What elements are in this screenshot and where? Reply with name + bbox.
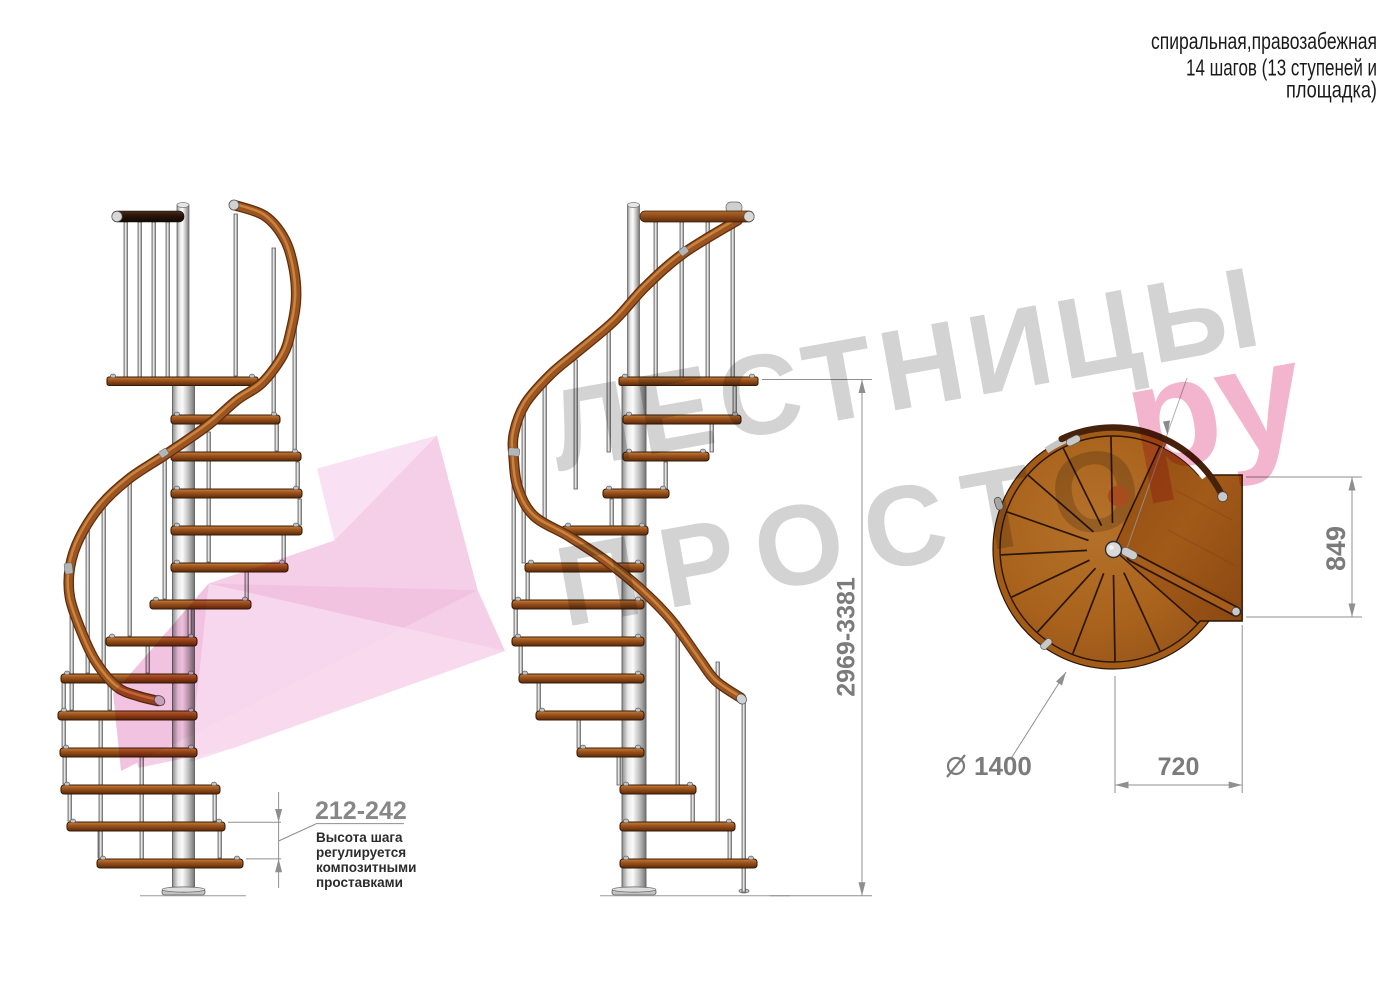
- svg-text:212-242: 212-242: [315, 797, 407, 825]
- svg-text:Высота шага: Высота шага: [316, 830, 403, 845]
- svg-text:спиральная,правозабежная: спиральная,правозабежная: [1151, 28, 1377, 54]
- svg-text:площадка): площадка): [1286, 77, 1377, 103]
- svg-text:регулируется: регулируется: [316, 845, 406, 860]
- svg-text:720: 720: [1158, 753, 1200, 781]
- svg-text:композитными: композитными: [316, 860, 416, 875]
- svg-text:проставками: проставками: [316, 875, 403, 890]
- svg-text:849: 849: [1321, 526, 1351, 571]
- svg-text:ру: ру: [1112, 306, 1317, 506]
- svg-text:1400: 1400: [974, 751, 1032, 781]
